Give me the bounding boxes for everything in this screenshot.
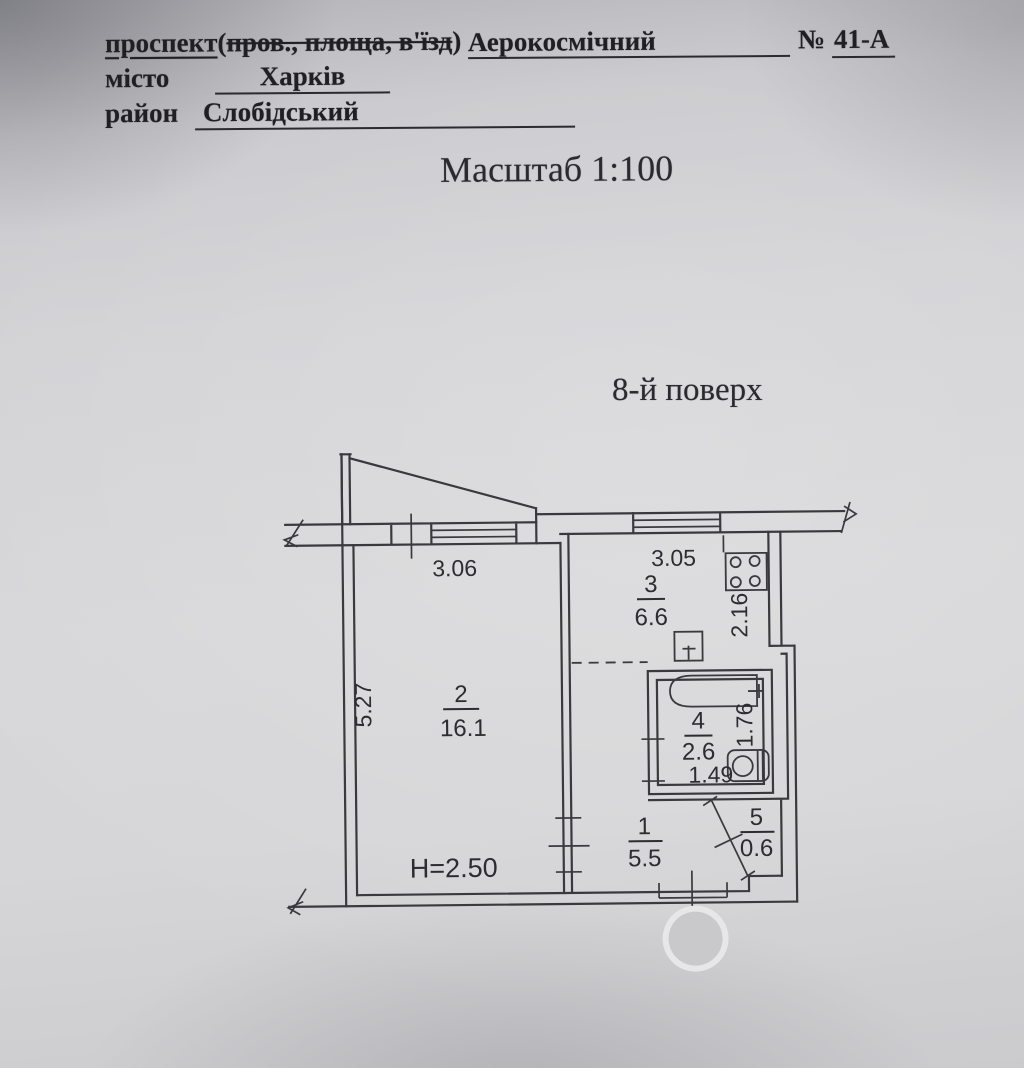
balcony-lines (340, 452, 536, 545)
wall-band-kitchen (536, 511, 844, 534)
dim-room2-width: 3.06 (432, 555, 477, 581)
scanned-floorplan-page: проспект(пров., площа, в'їзд) Аерокосміч… (0, 0, 1024, 1068)
sink-icon (674, 632, 702, 661)
stove-burner (750, 556, 760, 566)
balcony-outline (340, 452, 536, 545)
room4-area: 2.6 (682, 738, 716, 765)
door-opening-room2-ticks (548, 818, 590, 872)
bathtub-faucet (748, 684, 762, 698)
stamp-placeholder (662, 905, 729, 972)
room1-number: 1 (638, 813, 652, 840)
sink-faucet (682, 646, 695, 660)
dim-bath-depth: 1.76 (731, 703, 757, 748)
kitchen-hall-open-boundary (572, 662, 648, 663)
floorplan-drawing: 3.06 5.27 3.05 2.16 1.49 1.76 H=2.50 2 1… (0, 0, 1024, 1068)
partition-lines (560, 534, 572, 893)
ceiling-height-label: H=2.50 (410, 853, 498, 884)
room5-area: 0.6 (740, 835, 774, 862)
room3-number: 3 (644, 571, 658, 598)
exterior-wall-top-kitchen (536, 502, 856, 554)
window-room2-icon (431, 529, 516, 537)
toilet-icon (728, 750, 769, 781)
room2-area: 16.1 (440, 715, 487, 742)
room2-number: 2 (454, 681, 468, 708)
room4-number: 4 (691, 708, 705, 735)
bathroom-door-ticks (641, 739, 664, 781)
bottom-wall (288, 870, 797, 921)
right-wall-lines (646, 532, 797, 904)
dim-kitchen-depth: 2.16 (726, 593, 752, 638)
wall-band-left (285, 522, 560, 546)
entrance-door-ticks (659, 882, 727, 898)
wall-break-arrow-right-icon (841, 502, 856, 533)
toilet-tank (758, 751, 763, 780)
room1-area: 5.5 (628, 845, 662, 872)
window-kitchen-icon (633, 519, 720, 527)
stove-burner (750, 576, 760, 586)
stove-burner (731, 557, 741, 567)
stove-icon (726, 553, 767, 590)
stove-burner (731, 577, 741, 587)
right-wall (646, 532, 797, 904)
partition-room2 (545, 534, 590, 893)
dim-kitchen-width: 3.05 (651, 545, 696, 571)
room3-area: 6.6 (634, 604, 668, 631)
bottom-wall-lines (289, 876, 797, 907)
wall-break-arrow-bottom-icon (288, 889, 306, 915)
dim-room2-depth: 5.27 (350, 683, 376, 728)
room5-number: 5 (749, 804, 763, 831)
toilet-bowl (733, 756, 753, 776)
exterior-wall-top-left (284, 512, 560, 560)
